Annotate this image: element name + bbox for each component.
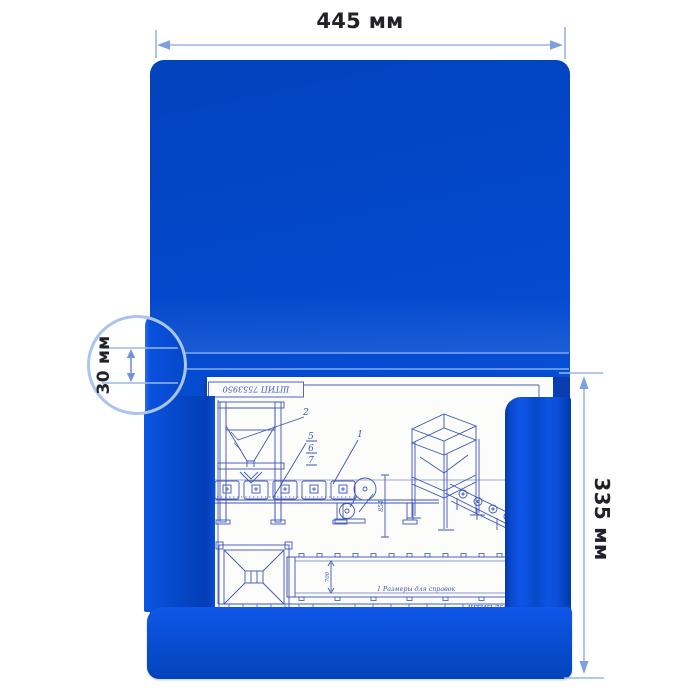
folder-spine-fold-line-top [151, 352, 569, 354]
folder-sheen [150, 295, 570, 352]
iso-height-dim: 854 [378, 500, 385, 512]
callout-2: 2 [302, 408, 309, 418]
folder-spine-fold-line-bottom [151, 368, 569, 370]
stamp-text: ШТИП 7553950 [223, 385, 291, 394]
callout-1: 1 [357, 430, 363, 440]
topview-width-dim: 700 [325, 571, 331, 582]
width-dimension-label: 445 мм [290, 8, 430, 34]
callout-7: 7 [308, 456, 314, 466]
folder-left-flap [144, 396, 215, 612]
height-dimension-label: 335 мм [589, 477, 615, 561]
product-photo-stage: ШТИП 7553950 2 5 6 7 1 854 700 1 Размеры… [0, 0, 700, 700]
note-text: 1 Размеры для справок [377, 586, 456, 593]
spine-dimension-label: 30 мм [91, 323, 117, 407]
folder-right-flap [505, 397, 571, 619]
folder-bottom-flap [147, 607, 572, 679]
magnifier-folder-edge [145, 315, 187, 415]
callout-6: 6 [308, 444, 314, 454]
callout-5: 5 [308, 432, 314, 442]
